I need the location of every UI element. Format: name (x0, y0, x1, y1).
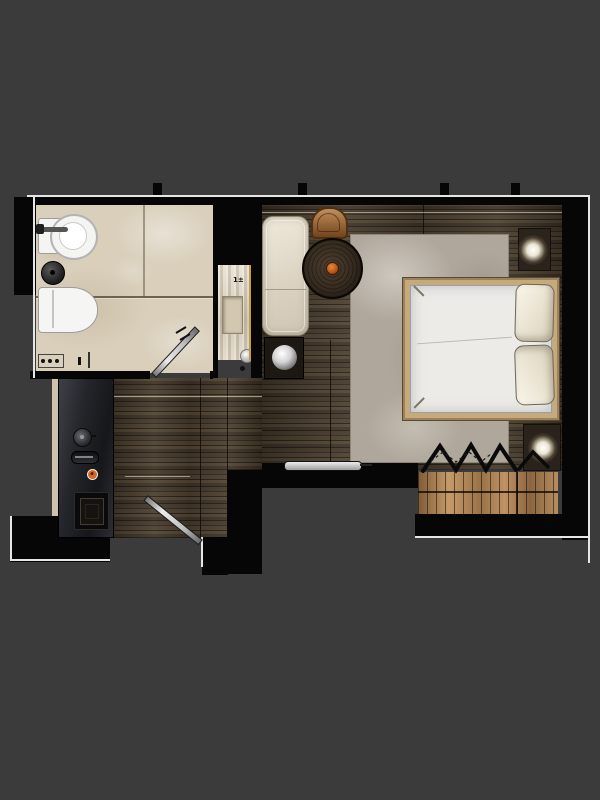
hanger-symbols-overlay (0, 0, 600, 800)
floor-plan-canvas: 1± (0, 0, 600, 800)
door-stop-tick (180, 334, 190, 340)
clothes-hanger-zigzag-right (519, 452, 548, 469)
clothes-hanger-zigzag (423, 445, 516, 471)
door-stop-tick (176, 327, 186, 333)
